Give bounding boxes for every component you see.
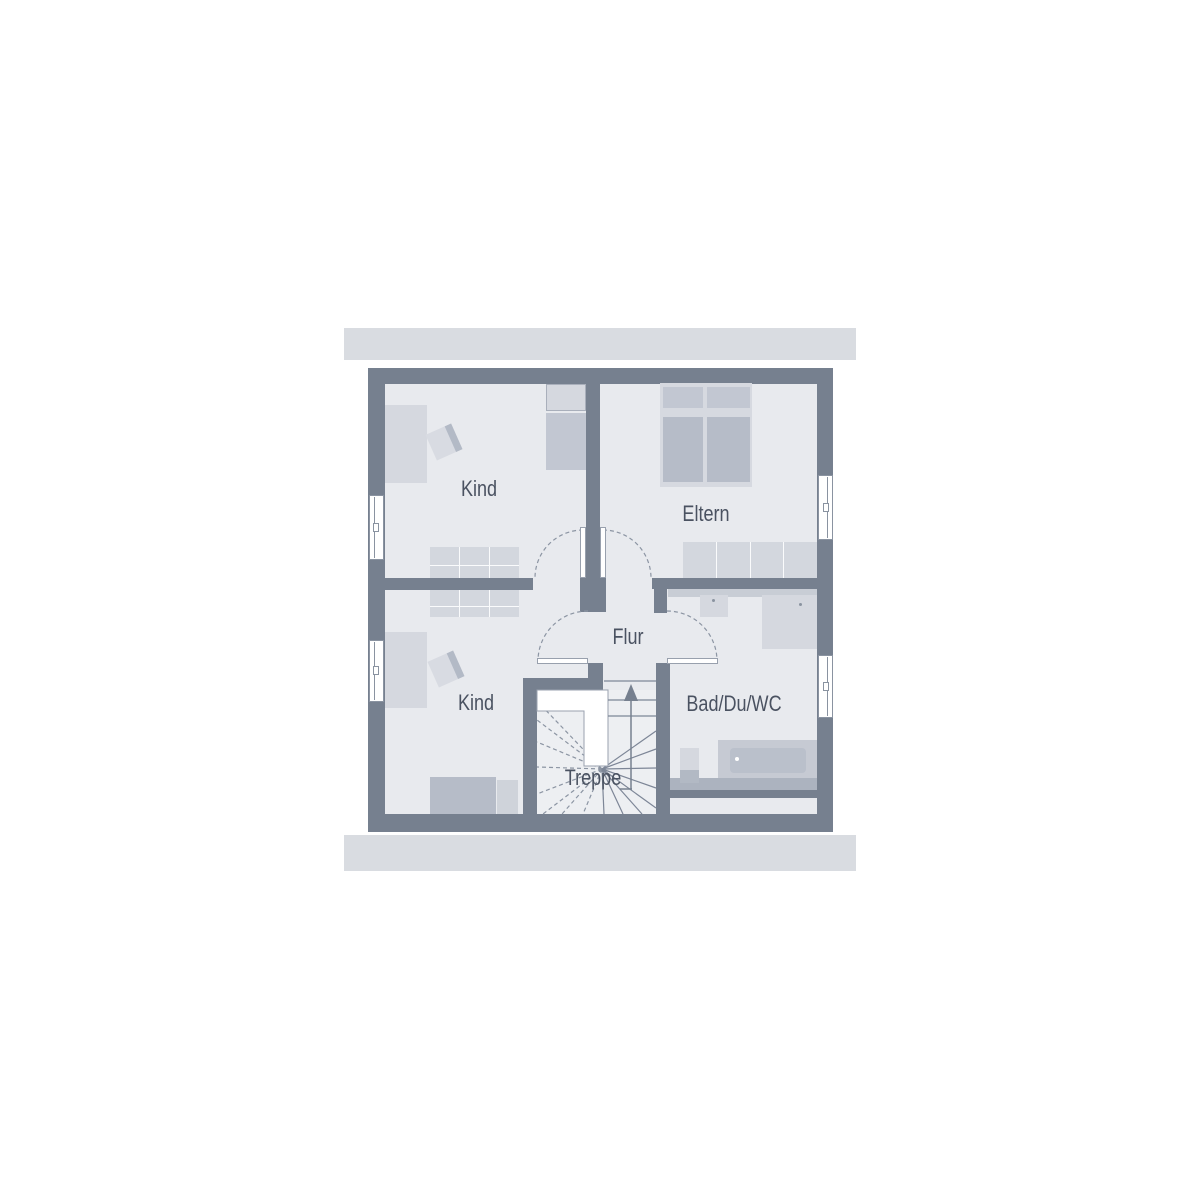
shower-drain-icon — [799, 603, 802, 606]
room-label-kind-bottom: Kind — [458, 690, 494, 716]
wall-stair-top-stub — [588, 663, 603, 679]
door-leaf-kind-top — [580, 527, 586, 578]
window-left-top — [369, 495, 384, 560]
bed-pillow-left — [663, 387, 703, 408]
bed-pillow-kind-bottom — [497, 780, 518, 814]
wall-bath-knee — [670, 790, 817, 798]
wall-eltern-bad-stub — [654, 578, 667, 613]
bathtub-basin — [730, 748, 806, 773]
bed-mattress-left — [663, 417, 703, 482]
wardrobe-kind-top — [546, 413, 586, 470]
toilet-tank — [680, 770, 699, 783]
wall-central — [586, 384, 600, 577]
room-label-kind-top: Kind — [461, 476, 497, 502]
roof-band-bottom — [344, 835, 856, 871]
door-leaf-bad — [667, 658, 718, 664]
wall-kind-divider — [368, 578, 533, 590]
staircase-floor — [537, 690, 656, 814]
window-right-bottom — [818, 655, 833, 718]
bed-kind-bottom — [430, 777, 496, 814]
window-left-bottom — [369, 640, 384, 702]
door-leaf-eltern — [600, 527, 606, 578]
room-label-bad: Bad/Du/WC — [686, 691, 781, 717]
bed-pillow-right — [707, 387, 750, 408]
window-right-top — [818, 475, 833, 540]
room-label-eltern: Eltern — [682, 501, 729, 527]
wall-eltern-bad — [652, 578, 817, 589]
room-label-flur: Flur — [612, 624, 643, 650]
shower — [762, 595, 817, 649]
sideboard-kind-bottom — [430, 590, 519, 617]
wall-central-foot — [580, 577, 606, 612]
wall-stair-left — [523, 678, 537, 814]
wardrobe-kind-top-left — [385, 405, 427, 483]
washbasin-drain-icon — [712, 599, 715, 602]
roof-band-top — [344, 328, 856, 360]
sideboard-kind-top — [430, 547, 519, 578]
floor-plan-page: Kind Eltern Kind Flur Treppe Bad/Du/WC — [0, 0, 1200, 1200]
door-leaf-kind-bottom — [537, 658, 588, 664]
toilet — [680, 748, 699, 772]
shelf-kind-top — [546, 384, 586, 411]
bed-mattress-right — [707, 417, 750, 482]
wall-stair-right — [656, 663, 670, 814]
bathtub-drain-icon — [735, 757, 739, 761]
wardrobe-eltern — [683, 542, 817, 578]
room-label-treppe: Treppe — [565, 765, 621, 791]
wardrobe-kind-bottom-left — [385, 632, 427, 708]
